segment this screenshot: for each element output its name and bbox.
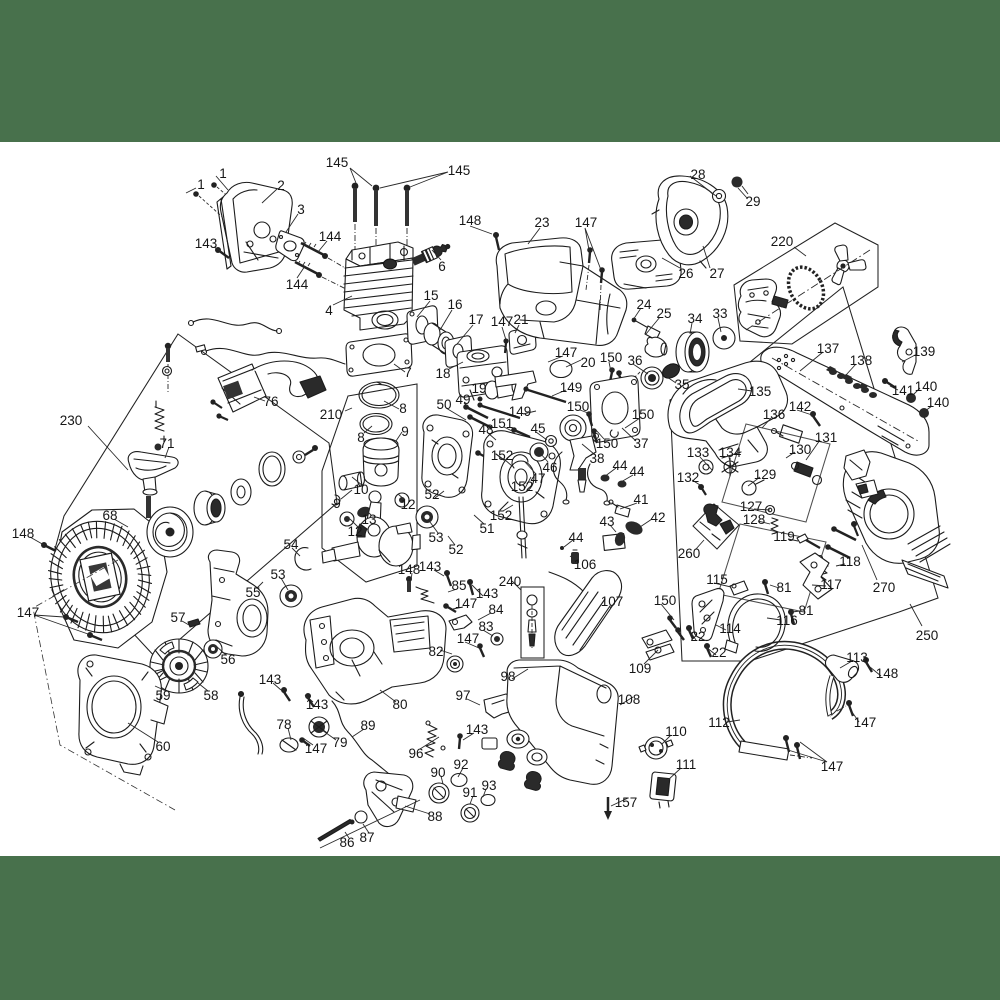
- svg-text:144: 144: [319, 229, 342, 244]
- svg-text:52: 52: [424, 487, 439, 502]
- svg-text:9: 9: [333, 496, 341, 511]
- svg-text:138: 138: [850, 353, 873, 368]
- svg-text:2: 2: [277, 178, 285, 193]
- svg-text:147: 147: [555, 345, 578, 360]
- svg-text:149: 149: [509, 404, 532, 419]
- svg-text:147: 147: [457, 631, 480, 646]
- svg-text:91: 91: [462, 785, 477, 800]
- svg-text:27: 27: [709, 266, 724, 281]
- svg-text:97: 97: [455, 688, 470, 703]
- svg-text:44: 44: [612, 458, 628, 473]
- svg-text:81: 81: [798, 603, 813, 618]
- svg-text:109: 109: [629, 661, 652, 676]
- svg-text:152: 152: [511, 479, 534, 494]
- svg-text:270: 270: [873, 580, 896, 595]
- svg-text:119: 119: [773, 529, 795, 544]
- svg-text:148: 148: [398, 562, 421, 577]
- svg-text:22: 22: [690, 629, 705, 644]
- svg-text:85: 85: [451, 578, 466, 593]
- svg-text:83: 83: [478, 619, 493, 634]
- svg-text:110: 110: [665, 724, 687, 739]
- svg-text:16: 16: [447, 297, 462, 312]
- svg-text:53: 53: [270, 567, 285, 582]
- svg-text:44: 44: [568, 530, 584, 545]
- svg-text:107: 107: [601, 594, 624, 609]
- svg-text:150: 150: [632, 407, 655, 422]
- svg-text:79: 79: [332, 735, 347, 750]
- svg-text:140: 140: [927, 395, 950, 410]
- svg-text:136: 136: [763, 407, 786, 422]
- svg-text:129: 129: [754, 467, 777, 482]
- svg-text:60: 60: [155, 739, 170, 754]
- svg-text:220: 220: [771, 234, 794, 249]
- svg-text:84: 84: [488, 602, 504, 617]
- svg-text:131: 131: [815, 430, 838, 445]
- svg-text:4: 4: [325, 303, 333, 318]
- svg-text:20: 20: [580, 355, 595, 370]
- svg-text:25: 25: [656, 306, 671, 321]
- svg-text:71: 71: [159, 436, 174, 451]
- svg-text:12: 12: [400, 497, 415, 512]
- svg-text:81: 81: [776, 580, 791, 595]
- svg-text:90: 90: [430, 765, 445, 780]
- svg-text:45: 45: [530, 421, 545, 436]
- svg-text:147: 147: [455, 596, 478, 611]
- svg-text:86: 86: [339, 835, 354, 850]
- svg-text:44: 44: [629, 464, 645, 479]
- svg-text:76: 76: [263, 394, 278, 409]
- svg-text:114: 114: [719, 621, 741, 636]
- svg-text:144: 144: [286, 277, 309, 292]
- svg-text:134: 134: [719, 445, 742, 460]
- svg-text:139: 139: [913, 344, 936, 359]
- svg-text:37: 37: [633, 436, 648, 451]
- svg-text:1: 1: [197, 177, 205, 192]
- svg-text:210: 210: [320, 407, 343, 422]
- svg-text:148: 148: [876, 666, 899, 681]
- svg-text:150: 150: [654, 593, 677, 608]
- svg-text:140: 140: [915, 379, 938, 394]
- svg-text:26: 26: [678, 266, 693, 281]
- svg-text:53: 53: [428, 530, 443, 545]
- svg-text:132: 132: [677, 470, 700, 485]
- svg-text:147: 147: [491, 314, 514, 329]
- svg-text:147: 147: [854, 715, 877, 730]
- svg-text:130: 130: [789, 442, 812, 457]
- svg-text:142: 142: [789, 399, 812, 414]
- svg-text:240: 240: [499, 574, 522, 589]
- svg-text:152: 152: [491, 448, 514, 463]
- svg-text:7: 7: [404, 365, 412, 380]
- svg-text:113: 113: [846, 650, 868, 665]
- svg-text:147: 147: [305, 741, 328, 756]
- svg-text:96: 96: [408, 746, 423, 761]
- svg-text:55: 55: [245, 585, 260, 600]
- svg-text:147: 147: [821, 759, 844, 774]
- svg-text:23: 23: [534, 215, 549, 230]
- svg-text:68: 68: [102, 508, 117, 523]
- svg-text:150: 150: [567, 399, 590, 414]
- svg-text:143: 143: [195, 236, 218, 251]
- svg-text:33: 33: [712, 306, 727, 321]
- svg-text:106: 106: [574, 557, 597, 572]
- svg-text:50: 50: [436, 397, 451, 412]
- svg-text:43: 43: [599, 514, 614, 529]
- svg-text:143: 143: [306, 697, 329, 712]
- svg-text:88: 88: [427, 809, 442, 824]
- svg-text:6: 6: [438, 259, 446, 274]
- svg-text:1: 1: [219, 166, 227, 181]
- svg-text:35: 35: [674, 377, 689, 392]
- svg-text:112: 112: [708, 715, 730, 730]
- svg-text:117: 117: [820, 577, 842, 592]
- svg-text:137: 137: [817, 341, 840, 356]
- svg-text:143: 143: [476, 586, 499, 601]
- svg-text:148: 148: [12, 526, 35, 541]
- svg-text:93: 93: [481, 778, 496, 793]
- svg-text:145: 145: [448, 163, 471, 178]
- svg-text:135: 135: [749, 384, 772, 399]
- svg-text:111: 111: [676, 757, 697, 772]
- svg-text:57: 57: [170, 610, 185, 625]
- svg-text:92: 92: [453, 757, 468, 772]
- svg-text:3: 3: [297, 202, 305, 217]
- svg-text:128: 128: [743, 512, 766, 527]
- svg-text:82: 82: [428, 644, 443, 659]
- svg-text:143: 143: [259, 672, 282, 687]
- svg-text:38: 38: [589, 451, 604, 466]
- svg-text:54: 54: [283, 537, 299, 552]
- svg-text:148: 148: [459, 213, 482, 228]
- svg-text:29: 29: [745, 194, 760, 209]
- svg-text:141: 141: [892, 383, 915, 398]
- svg-text:145: 145: [326, 155, 349, 170]
- svg-text:260: 260: [678, 546, 701, 561]
- svg-text:12: 12: [347, 524, 362, 539]
- svg-text:118: 118: [839, 554, 861, 569]
- svg-text:80: 80: [392, 697, 407, 712]
- svg-text:147: 147: [575, 215, 598, 230]
- svg-text:22: 22: [711, 645, 726, 660]
- svg-text:8: 8: [357, 430, 365, 445]
- svg-text:49: 49: [455, 392, 470, 407]
- svg-text:19: 19: [471, 381, 486, 396]
- svg-text:143: 143: [419, 559, 442, 574]
- svg-text:230: 230: [60, 413, 83, 428]
- svg-text:8: 8: [399, 401, 407, 416]
- svg-text:13: 13: [361, 512, 376, 527]
- svg-text:24: 24: [636, 297, 652, 312]
- svg-text:51: 51: [479, 521, 494, 536]
- svg-text:150: 150: [596, 436, 619, 451]
- svg-text:21: 21: [513, 312, 528, 327]
- svg-text:108: 108: [618, 692, 641, 707]
- svg-text:56: 56: [220, 652, 235, 667]
- svg-text:17: 17: [468, 312, 483, 327]
- svg-text:58: 58: [203, 688, 218, 703]
- svg-text:36: 36: [627, 353, 642, 368]
- svg-text:150: 150: [600, 350, 623, 365]
- svg-text:89: 89: [360, 718, 375, 733]
- svg-text:147: 147: [17, 605, 40, 620]
- svg-text:116: 116: [776, 613, 798, 628]
- svg-text:87: 87: [359, 830, 374, 845]
- svg-text:28: 28: [690, 167, 705, 182]
- svg-text:157: 157: [615, 795, 638, 810]
- svg-text:78: 78: [276, 717, 291, 732]
- svg-text:250: 250: [916, 628, 939, 643]
- svg-text:10: 10: [353, 482, 368, 497]
- svg-text:18: 18: [435, 366, 450, 381]
- svg-text:143: 143: [466, 722, 489, 737]
- svg-text:15: 15: [423, 288, 438, 303]
- svg-text:52: 52: [448, 542, 463, 557]
- svg-text:59: 59: [155, 688, 170, 703]
- svg-text:34: 34: [687, 311, 703, 326]
- svg-text:98: 98: [500, 669, 515, 684]
- svg-text:133: 133: [687, 445, 710, 460]
- svg-text:42: 42: [650, 510, 665, 525]
- svg-text:115: 115: [706, 572, 728, 587]
- svg-text:149: 149: [560, 380, 583, 395]
- svg-text:9: 9: [401, 424, 409, 439]
- svg-text:41: 41: [633, 492, 648, 507]
